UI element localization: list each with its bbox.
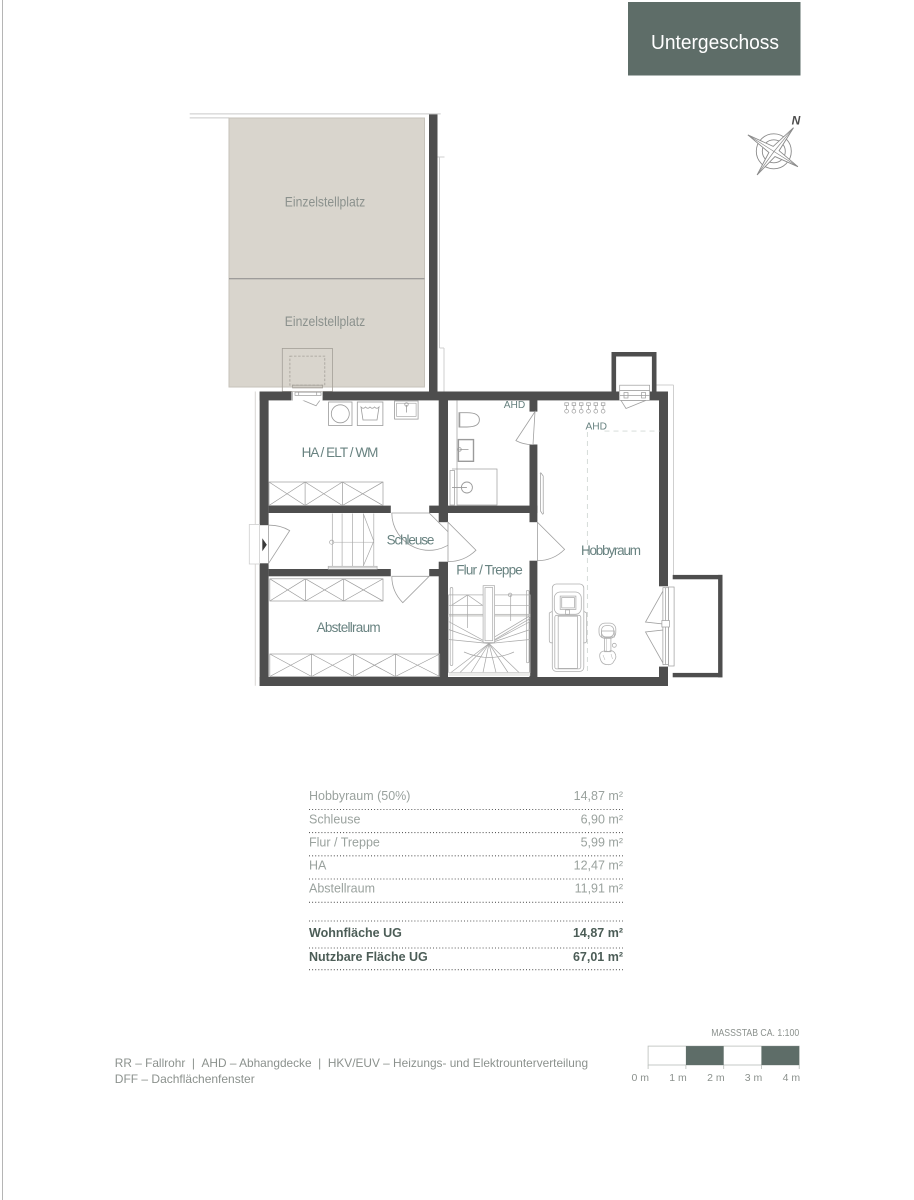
svg-text:3 m: 3 m [745, 1072, 763, 1084]
svg-text:Wohnfläche UG: Wohnfläche UG [309, 926, 402, 940]
svg-text:12,47 m²: 12,47 m² [574, 859, 623, 873]
svg-text:DFF – Dachflächenfenster: DFF – Dachflächenfenster [115, 1072, 255, 1086]
svg-text:0 m: 0 m [631, 1072, 649, 1084]
svg-text:Schleuse: Schleuse [387, 533, 435, 548]
svg-text:1 m: 1 m [669, 1072, 687, 1084]
svg-text:Flur / Treppe: Flur / Treppe [456, 563, 523, 578]
svg-text:N: N [792, 114, 801, 128]
svg-text:HA: HA [309, 859, 327, 873]
svg-text:Einzelstellplatz: Einzelstellplatz [285, 313, 365, 329]
svg-text:Schleuse: Schleuse [309, 812, 360, 826]
svg-text:14,87 m²: 14,87 m² [573, 926, 623, 940]
svg-text:MASSSTAB CA. 1:100: MASSSTAB CA. 1:100 [711, 1028, 799, 1039]
svg-text:Einzelstellplatz: Einzelstellplatz [285, 194, 365, 210]
svg-text:Nutzbare Fläche UG: Nutzbare Fläche UG [309, 950, 428, 964]
svg-text:Abstellraum: Abstellraum [309, 882, 375, 896]
svg-text:2 m: 2 m [707, 1072, 725, 1084]
svg-text:HA / ELT / WM: HA / ELT / WM [302, 445, 379, 460]
svg-text:AHD: AHD [585, 422, 607, 433]
svg-text:14,87 m²: 14,87 m² [574, 789, 623, 803]
svg-text:5,99 m²: 5,99 m² [581, 836, 623, 850]
svg-text:Flur / Treppe: Flur / Treppe [309, 836, 380, 850]
svg-text:RR – Fallrohr | AHD – Abhang: RR – Fallrohr | AHD – Abhangdecke | HKV/… [115, 1056, 588, 1070]
svg-text:67,01 m²: 67,01 m² [573, 950, 623, 964]
svg-text:Hobbyraum: Hobbyraum [581, 543, 641, 558]
svg-text:11,91 m²: 11,91 m² [575, 882, 623, 896]
svg-text:Untergeschoss: Untergeschoss [651, 32, 779, 54]
svg-text:Abstellraum: Abstellraum [317, 620, 381, 635]
svg-text:AHD: AHD [504, 400, 526, 411]
svg-text:4 m: 4 m [783, 1072, 801, 1084]
svg-text:Hobbyraum (50%): Hobbyraum (50%) [309, 789, 410, 803]
svg-text:6,90 m²: 6,90 m² [581, 812, 623, 826]
